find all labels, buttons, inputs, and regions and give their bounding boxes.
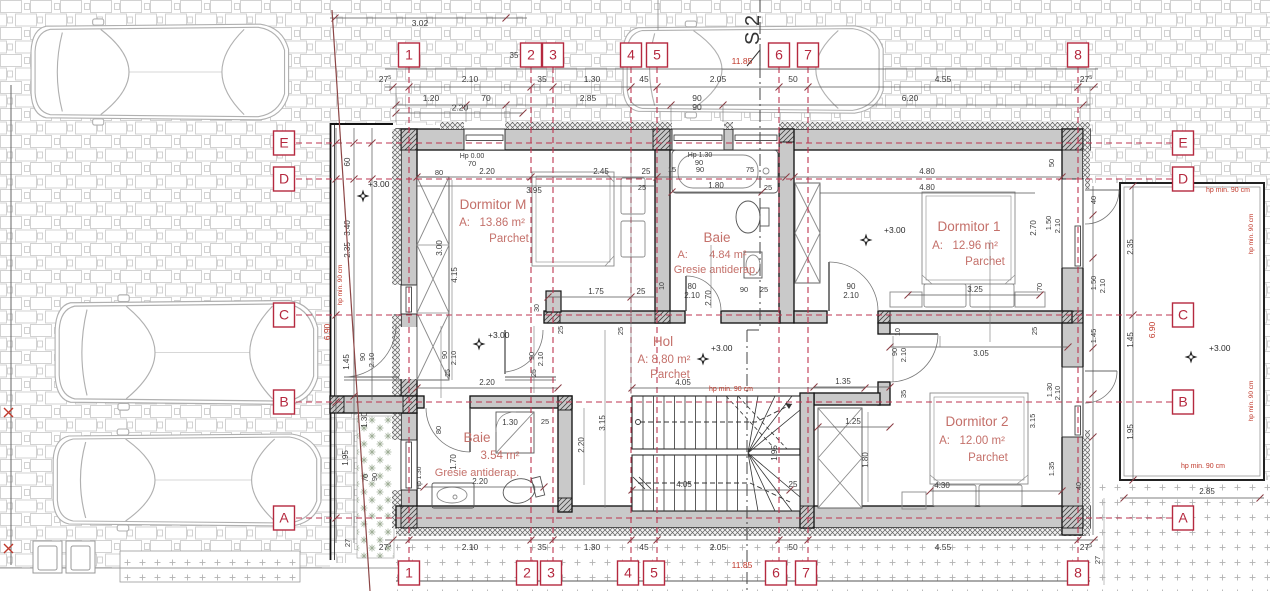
svg-text:3.54 m²: 3.54 m² [481, 450, 520, 462]
svg-text:Parchet: Parchet [968, 452, 1008, 464]
svg-text:3.15: 3.15 [1028, 414, 1037, 429]
svg-text:2.20: 2.20 [577, 437, 586, 453]
svg-text:1.30: 1.30 [584, 74, 601, 84]
svg-text:3: 3 [547, 565, 555, 581]
svg-text:1.50: 1.50 [1089, 276, 1098, 291]
svg-text:2.10: 2.10 [536, 352, 545, 367]
svg-text:S 2: S 2 [742, 15, 764, 45]
svg-text:45: 45 [639, 542, 649, 552]
svg-text:6.90: 6.90 [1147, 321, 1157, 338]
svg-text:A: 12.96 m²: A: 12.96 m² [932, 240, 998, 252]
svg-text:2.85: 2.85 [580, 93, 597, 103]
svg-text:2.10: 2.10 [449, 351, 458, 366]
svg-text:Gresie antiderap.: Gresie antiderap. [435, 467, 519, 479]
svg-text:11.85: 11.85 [732, 560, 753, 570]
svg-text:2.70: 2.70 [704, 290, 713, 306]
svg-text:80: 80 [434, 426, 443, 434]
svg-text:10: 10 [659, 282, 666, 290]
svg-text:1.95: 1.95 [1126, 424, 1135, 440]
svg-text:3.25: 3.25 [967, 285, 983, 294]
svg-text:4.30: 4.30 [934, 481, 950, 490]
svg-text:hp min. 90 cm: hp min. 90 cm [1248, 214, 1255, 255]
svg-text:90: 90 [370, 473, 379, 481]
svg-text:2.70: 2.70 [1029, 220, 1038, 236]
svg-text:4.80: 4.80 [919, 167, 935, 176]
svg-text:90: 90 [358, 353, 367, 361]
svg-text:90: 90 [692, 102, 702, 112]
svg-text:25: 25 [642, 167, 651, 176]
svg-text:2: 2 [523, 565, 531, 581]
svg-text:2.10: 2.10 [684, 291, 700, 300]
svg-text:90: 90 [527, 352, 536, 360]
svg-text:25: 25 [637, 287, 646, 296]
svg-text:3.95: 3.95 [526, 186, 542, 195]
svg-text:D: D [1178, 171, 1188, 187]
svg-text:2.10: 2.10 [1053, 219, 1062, 234]
svg-text:1.35: 1.35 [835, 377, 851, 386]
svg-text:25: 25 [789, 480, 798, 489]
svg-text:1.50: 1.50 [1044, 216, 1053, 231]
svg-text:D: D [279, 171, 289, 187]
svg-text:2.10: 2.10 [462, 74, 479, 84]
svg-text:25: 25 [616, 327, 625, 335]
svg-text:1: 1 [405, 47, 413, 63]
svg-text:Parchet: Parchet [489, 233, 529, 245]
svg-text:A: 8,80 m²: A: 8,80 m² [637, 354, 690, 366]
svg-text:B: B [1178, 394, 1187, 410]
svg-text:4: 4 [627, 47, 635, 63]
svg-text:A: 4.84 m²: A: 4.84 m² [677, 249, 746, 261]
svg-text:11.85: 11.85 [732, 56, 753, 66]
svg-text:1.95: 1.95 [770, 445, 779, 461]
svg-text:25: 25 [531, 369, 538, 377]
svg-text:25: 25 [638, 183, 646, 192]
svg-text:8: 8 [1074, 47, 1082, 63]
svg-text:1.30: 1.30 [360, 412, 369, 428]
svg-text:Dormitor M: Dormitor M [460, 197, 527, 212]
svg-text:6: 6 [775, 47, 783, 63]
svg-text:+3.00: +3.00 [884, 225, 906, 235]
svg-text:3.40: 3.40 [343, 220, 352, 236]
svg-text:2.10: 2.10 [1098, 279, 1107, 294]
svg-text:2.10: 2.10 [843, 291, 859, 300]
svg-text:2.20: 2.20 [479, 378, 495, 387]
svg-text:35: 35 [899, 390, 908, 398]
svg-text:A: A [279, 510, 289, 526]
svg-text:25: 25 [445, 369, 452, 377]
svg-text:1.45: 1.45 [1089, 329, 1098, 344]
svg-text:90: 90 [740, 285, 748, 294]
svg-text:6.90: 6.90 [322, 323, 332, 340]
svg-text:5: 5 [650, 565, 658, 581]
svg-text:Baie: Baie [703, 230, 730, 245]
svg-text:3.00: 3.00 [435, 240, 444, 256]
svg-text:1: 1 [405, 565, 413, 581]
svg-text:45: 45 [639, 74, 649, 84]
svg-text:hp min. 90 cm: hp min. 90 cm [709, 386, 753, 393]
svg-text:90: 90 [696, 165, 704, 174]
svg-text:27: 27 [343, 539, 352, 547]
svg-text:C: C [279, 307, 289, 323]
svg-text:2.10: 2.10 [899, 348, 908, 363]
svg-text:25: 25 [556, 326, 565, 334]
svg-text:1.80: 1.80 [708, 181, 724, 190]
svg-text:80: 80 [435, 168, 443, 177]
svg-text:25: 25 [760, 285, 768, 294]
svg-text:hp min. 90 cm: hp min. 90 cm [1181, 463, 1225, 470]
svg-text:25: 25 [541, 417, 549, 426]
svg-text:4.05: 4.05 [676, 480, 692, 489]
svg-text:E: E [1178, 135, 1187, 151]
svg-text:35: 35 [510, 51, 519, 60]
svg-text:Gresie antiderap.: Gresie antiderap. [674, 264, 758, 276]
svg-text:A: 13.86 m²: A: 13.86 m² [459, 217, 525, 229]
svg-text:27: 27 [1093, 556, 1102, 564]
svg-text:25: 25 [1030, 327, 1039, 335]
svg-text:Dormitor 1: Dormitor 1 [937, 219, 1000, 234]
svg-text:35: 35 [537, 542, 547, 552]
svg-text:40: 40 [1076, 482, 1083, 490]
svg-text:C: C [1178, 307, 1188, 323]
svg-text:1.45: 1.45 [1126, 332, 1135, 348]
svg-text:8: 8 [1074, 565, 1082, 581]
svg-text:1.35: 1.35 [1047, 462, 1056, 477]
svg-text:A: A [1178, 510, 1188, 526]
svg-text:70: 70 [468, 159, 476, 168]
svg-text:70: 70 [481, 93, 491, 103]
svg-text:6: 6 [772, 565, 780, 581]
svg-text:7: 7 [802, 565, 810, 581]
svg-text:80: 80 [688, 282, 697, 291]
svg-text:1.45: 1.45 [342, 354, 351, 370]
svg-text:7: 7 [804, 47, 812, 63]
svg-text:Dormitor 2: Dormitor 2 [945, 414, 1008, 429]
svg-text:1.75: 1.75 [588, 287, 604, 296]
svg-text:4.55: 4.55 [935, 74, 952, 84]
svg-text:+3.00: +3.00 [1209, 343, 1231, 353]
svg-text:Hp 1.30: Hp 1.30 [416, 466, 423, 489]
svg-text:1.20: 1.20 [423, 93, 440, 103]
svg-text:2.05: 2.05 [710, 542, 727, 552]
svg-text:50: 50 [788, 542, 798, 552]
svg-text:4: 4 [624, 565, 632, 581]
svg-text:30: 30 [534, 304, 541, 312]
svg-text:15: 15 [668, 165, 676, 174]
svg-text:1.95: 1.95 [341, 450, 350, 466]
svg-text:A: 12.00 m²: A: 12.00 m² [939, 435, 1005, 447]
svg-text:1.30: 1.30 [502, 418, 518, 427]
svg-text:1.80: 1.80 [861, 452, 870, 468]
svg-text:2.10: 2.10 [367, 353, 376, 368]
svg-text:+3.00: +3.00 [368, 179, 390, 189]
svg-text:2.85: 2.85 [1199, 487, 1215, 496]
svg-text:50: 50 [1047, 159, 1056, 167]
svg-text:2.45: 2.45 [593, 167, 609, 176]
svg-text:4.55: 4.55 [935, 542, 952, 552]
svg-text:E: E [279, 135, 288, 151]
svg-text:+3.00: +3.00 [488, 330, 510, 340]
svg-text:2: 2 [527, 47, 535, 63]
svg-text:50: 50 [788, 74, 798, 84]
svg-text:10: 10 [895, 328, 902, 336]
svg-text:2.05: 2.05 [710, 74, 727, 84]
svg-text:4.15: 4.15 [450, 267, 459, 283]
svg-text:90: 90 [440, 351, 449, 359]
svg-text:5: 5 [653, 47, 661, 63]
svg-text:90: 90 [890, 348, 899, 356]
svg-text:4.80: 4.80 [919, 183, 935, 192]
svg-text:Baie: Baie [463, 430, 490, 445]
svg-text:75: 75 [746, 165, 754, 174]
svg-text:B: B [279, 394, 288, 410]
svg-text:Parchet: Parchet [965, 256, 1005, 268]
svg-text:2.20: 2.20 [479, 167, 495, 176]
svg-text:3: 3 [549, 47, 557, 63]
svg-text:hp min. 90 cm: hp min. 90 cm [1248, 381, 1255, 422]
svg-text:1.25: 1.25 [845, 417, 861, 426]
svg-text:2.35: 2.35 [1126, 239, 1135, 255]
svg-text:6.20: 6.20 [902, 93, 919, 103]
svg-text:35: 35 [537, 74, 547, 84]
svg-text:Hol: Hol [653, 334, 673, 349]
svg-text:2.10: 2.10 [462, 542, 479, 552]
svg-text:1.30: 1.30 [584, 542, 601, 552]
svg-text:3.02: 3.02 [412, 18, 429, 28]
svg-text:3.05: 3.05 [973, 349, 989, 358]
svg-text:hp min. 90 cm: hp min. 90 cm [337, 265, 344, 306]
svg-text:25: 25 [764, 183, 772, 192]
svg-text:60: 60 [343, 157, 352, 166]
svg-text:Parchet: Parchet [650, 369, 690, 381]
svg-text:90: 90 [847, 282, 856, 291]
svg-text:40: 40 [1089, 196, 1098, 204]
svg-text:+3.00: +3.00 [711, 343, 733, 353]
svg-text:70: 70 [1035, 283, 1044, 291]
svg-text:2.10: 2.10 [1053, 386, 1062, 401]
svg-text:hp min. 90 cm: hp min. 90 cm [1206, 187, 1250, 194]
svg-text:3.15: 3.15 [598, 415, 607, 431]
